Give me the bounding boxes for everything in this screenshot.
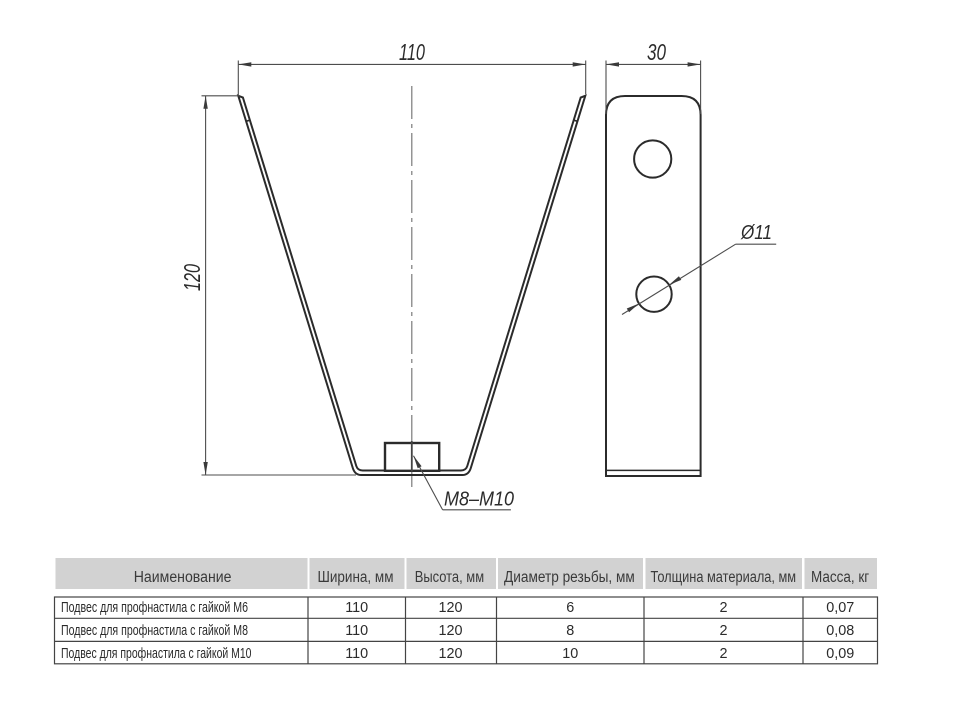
svg-text:Масса, кг: Масса, кг xyxy=(811,569,870,586)
svg-text:Ширина, мм: Ширина, мм xyxy=(318,569,394,586)
svg-text:2: 2 xyxy=(719,623,727,639)
svg-text:120: 120 xyxy=(438,646,462,662)
svg-text:120: 120 xyxy=(179,264,205,291)
svg-text:0,08: 0,08 xyxy=(826,623,854,639)
svg-text:6: 6 xyxy=(566,600,574,616)
svg-text:M8–M10: M8–M10 xyxy=(444,489,514,511)
svg-text:Наименование: Наименование xyxy=(134,569,232,586)
svg-text:10: 10 xyxy=(562,646,578,662)
svg-text:0,07: 0,07 xyxy=(826,600,854,616)
svg-text:2: 2 xyxy=(719,646,727,662)
svg-text:Ø11: Ø11 xyxy=(740,222,772,244)
svg-text:110: 110 xyxy=(399,39,425,65)
svg-text:Подвес для профнастила с гайко: Подвес для профнастила с гайкой М8 xyxy=(61,623,248,639)
svg-text:120: 120 xyxy=(438,600,462,616)
svg-text:0,09: 0,09 xyxy=(826,646,854,662)
svg-text:120: 120 xyxy=(438,623,462,639)
svg-text:30: 30 xyxy=(647,39,666,65)
svg-text:110: 110 xyxy=(345,646,368,662)
svg-text:2: 2 xyxy=(719,600,727,616)
svg-text:Высота, мм: Высота, мм xyxy=(415,569,484,586)
svg-text:Диаметр резьбы, мм: Диаметр резьбы, мм xyxy=(504,569,635,586)
svg-text:Подвес для профнастила с гайко: Подвес для профнастила с гайкой М10 xyxy=(61,646,252,662)
svg-text:Толщина материала, мм: Толщина материала, мм xyxy=(651,569,797,586)
svg-text:110: 110 xyxy=(345,623,368,639)
svg-text:110: 110 xyxy=(345,600,368,616)
svg-text:8: 8 xyxy=(566,623,574,639)
svg-text:Подвес для профнастила с гайко: Подвес для профнастила с гайкой М6 xyxy=(61,600,248,616)
